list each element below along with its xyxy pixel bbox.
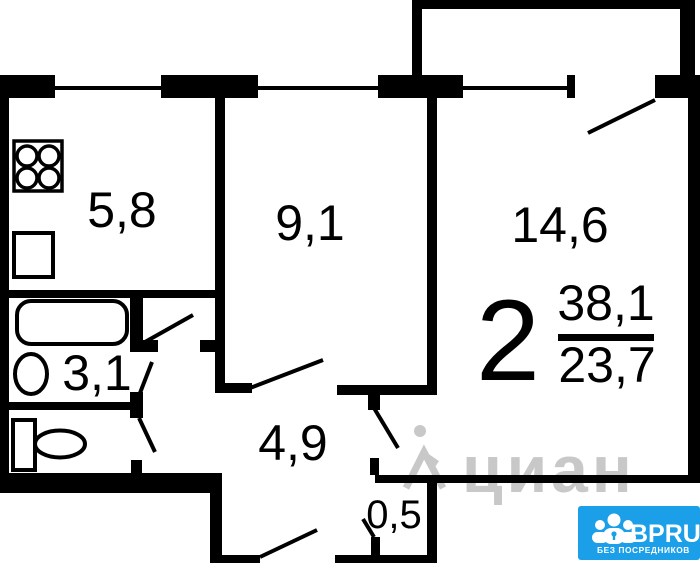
watermark-text: циан [462,432,636,506]
toilet-bowl [35,431,85,458]
wall-segment [371,537,380,555]
windows [55,75,655,102]
stove-icon [14,141,62,191]
room-label-bathroom: 3,1 [62,345,132,401]
kitchen-sink-icon [14,233,53,277]
wall-segment [0,75,9,493]
person-head [595,520,605,530]
washbasin-icon [15,354,47,394]
window-glazing-line [463,86,567,90]
living-room-window [463,77,567,102]
room-label-kitchen: 5,8 [87,182,157,238]
rooms-count: 2 [476,277,540,405]
balcony-door-opening [575,75,655,102]
apartment-summary: 2 38,1 23,7 [476,275,656,405]
entrance-door-swing [260,530,317,557]
wall-segment [130,340,158,352]
balcony-door-swing [588,100,655,133]
wall-segment [161,75,258,98]
wall-segment [200,340,225,352]
wall-segment [337,385,437,395]
wall-segment [688,98,700,483]
living-area: 23,7 [558,337,655,393]
stove-burner [39,146,59,166]
bpru-tagline-text: БЕЗ ПОСРЕДНИКОВ [597,545,690,555]
wall-segment [378,75,463,98]
wall-segment [0,473,222,493]
bathtub-icon [17,301,127,344]
stove-burner [39,168,59,188]
wall-segment [8,402,133,410]
total-area: 38,1 [557,275,654,331]
wall-segment [130,392,143,418]
bpru-brand-text: BPRU [630,520,700,548]
toilet-tank [13,420,35,470]
person-head [608,514,621,527]
wall-segment [8,290,218,298]
balcony-wall [680,0,695,75]
balcony-wall [412,0,695,9]
wall-segment [375,475,700,483]
room-label-living-room: 14,6 [511,197,608,253]
room-label-hallway: 4,9 [258,415,328,471]
balcony-wall [412,0,422,75]
floor-plan-drawing: циан [0,0,700,563]
toilet-icon [13,420,85,470]
stove-burner [17,168,37,188]
room-label-bedroom: 9,1 [275,195,345,251]
room-label-closet: 0,5 [366,493,422,537]
wall-segment [427,483,437,563]
wc-door-swing [139,418,155,452]
pantry-door-swing [145,315,193,342]
bpru-logo: BPRU БЕЗ ПОСРЕДНИКОВ [578,506,700,560]
floor-plan: циан [0,0,700,563]
bedroom-window [258,77,378,102]
wall-segment [567,75,575,98]
bedroom-door-swing [250,360,323,388]
wall-segment [215,383,252,393]
wall-segment [368,392,380,410]
window-glazing-line [55,86,161,90]
wall-segment [130,298,143,340]
stove-burner [17,146,37,166]
wall-segment [210,473,222,563]
wall-segment [370,458,379,475]
wall-segment [427,98,437,395]
wall-segment [655,75,700,98]
wall-segment [335,555,437,563]
kitchen-window [55,77,161,102]
cian-watermark: циан [406,425,636,506]
wall-segment [131,460,142,473]
living-room-door-swing [374,408,398,448]
bathroom-door-swing [140,362,152,393]
window-glazing-line [258,86,378,90]
wall-segment [213,555,260,563]
keyhole-stem [613,535,615,540]
watermark-person-head [414,425,426,437]
